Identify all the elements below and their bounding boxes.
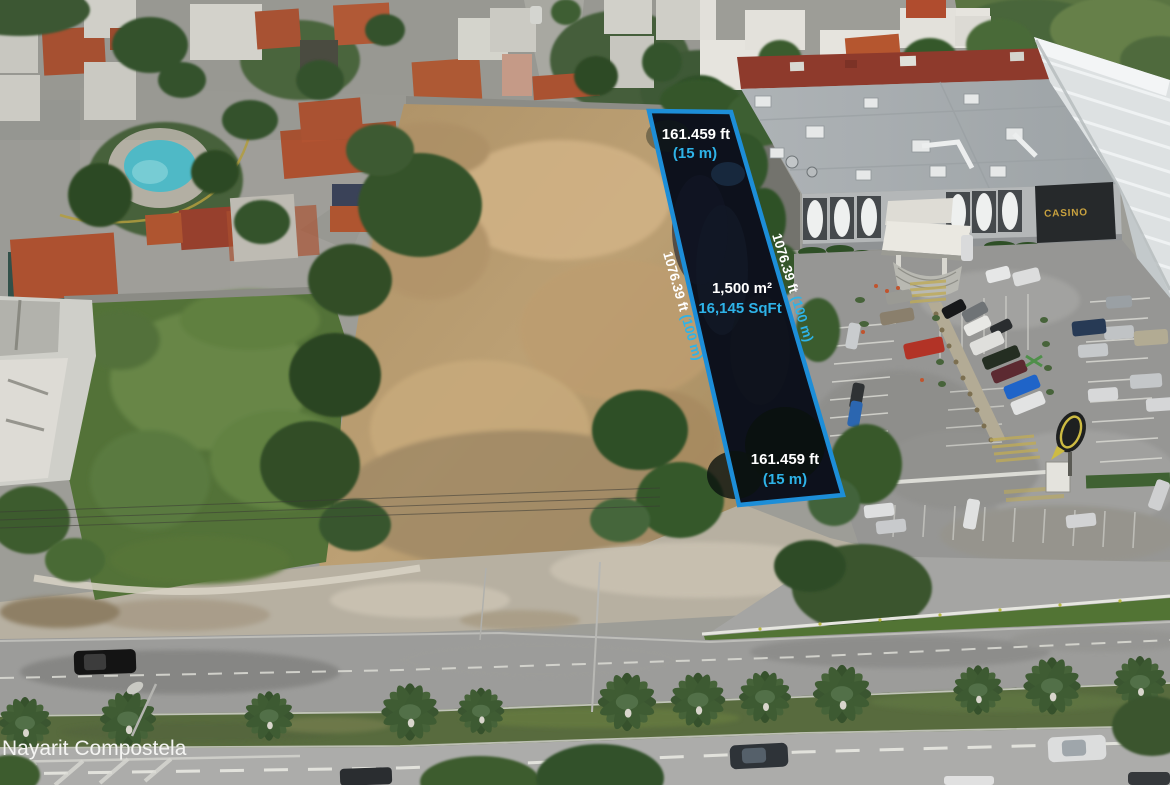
- svg-text:16,145 SqFt: 16,145 SqFt: [698, 300, 781, 317]
- svg-text:1,500 m²: 1,500 m²: [712, 280, 772, 297]
- svg-text:Nayarit Compostela: Nayarit Compostela: [2, 737, 187, 760]
- svg-text:(15 m): (15 m): [763, 471, 807, 488]
- svg-text:CASINO: CASINO: [1044, 207, 1088, 220]
- svg-text:(15 m): (15 m): [673, 145, 717, 162]
- svg-text:161.459 ft: 161.459 ft: [662, 126, 730, 143]
- svg-text:161.459 ft: 161.459 ft: [751, 451, 819, 468]
